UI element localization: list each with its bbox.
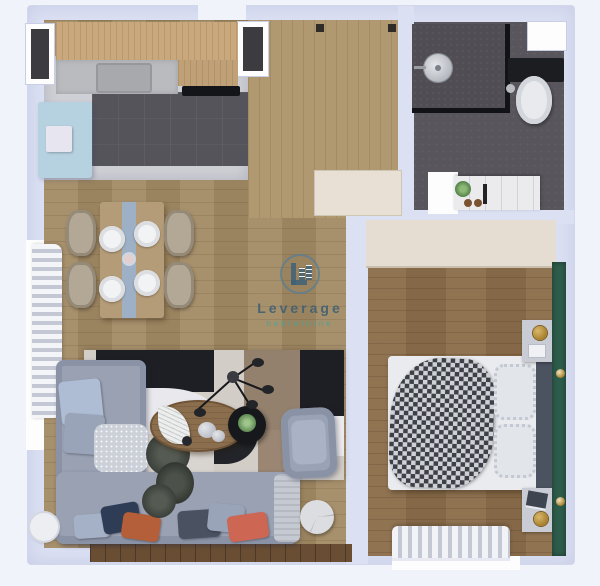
watermark: Leverage nekretnine <box>240 254 360 328</box>
watermark-brand: Leverage <box>240 300 360 316</box>
watermark-tagline: nekretnine <box>240 319 360 328</box>
shower-arm <box>414 66 426 69</box>
leverage-logo-icon <box>280 254 320 294</box>
soap-dish <box>464 199 472 207</box>
soap-dish <box>474 199 482 207</box>
vanity-plant <box>455 181 471 197</box>
toilet-bowl <box>516 76 552 124</box>
shower-head-center <box>435 65 441 71</box>
vanity-bottle <box>483 184 487 204</box>
floorplan-render: Leverage nekretnine <box>0 0 600 586</box>
flush-button <box>506 84 515 93</box>
